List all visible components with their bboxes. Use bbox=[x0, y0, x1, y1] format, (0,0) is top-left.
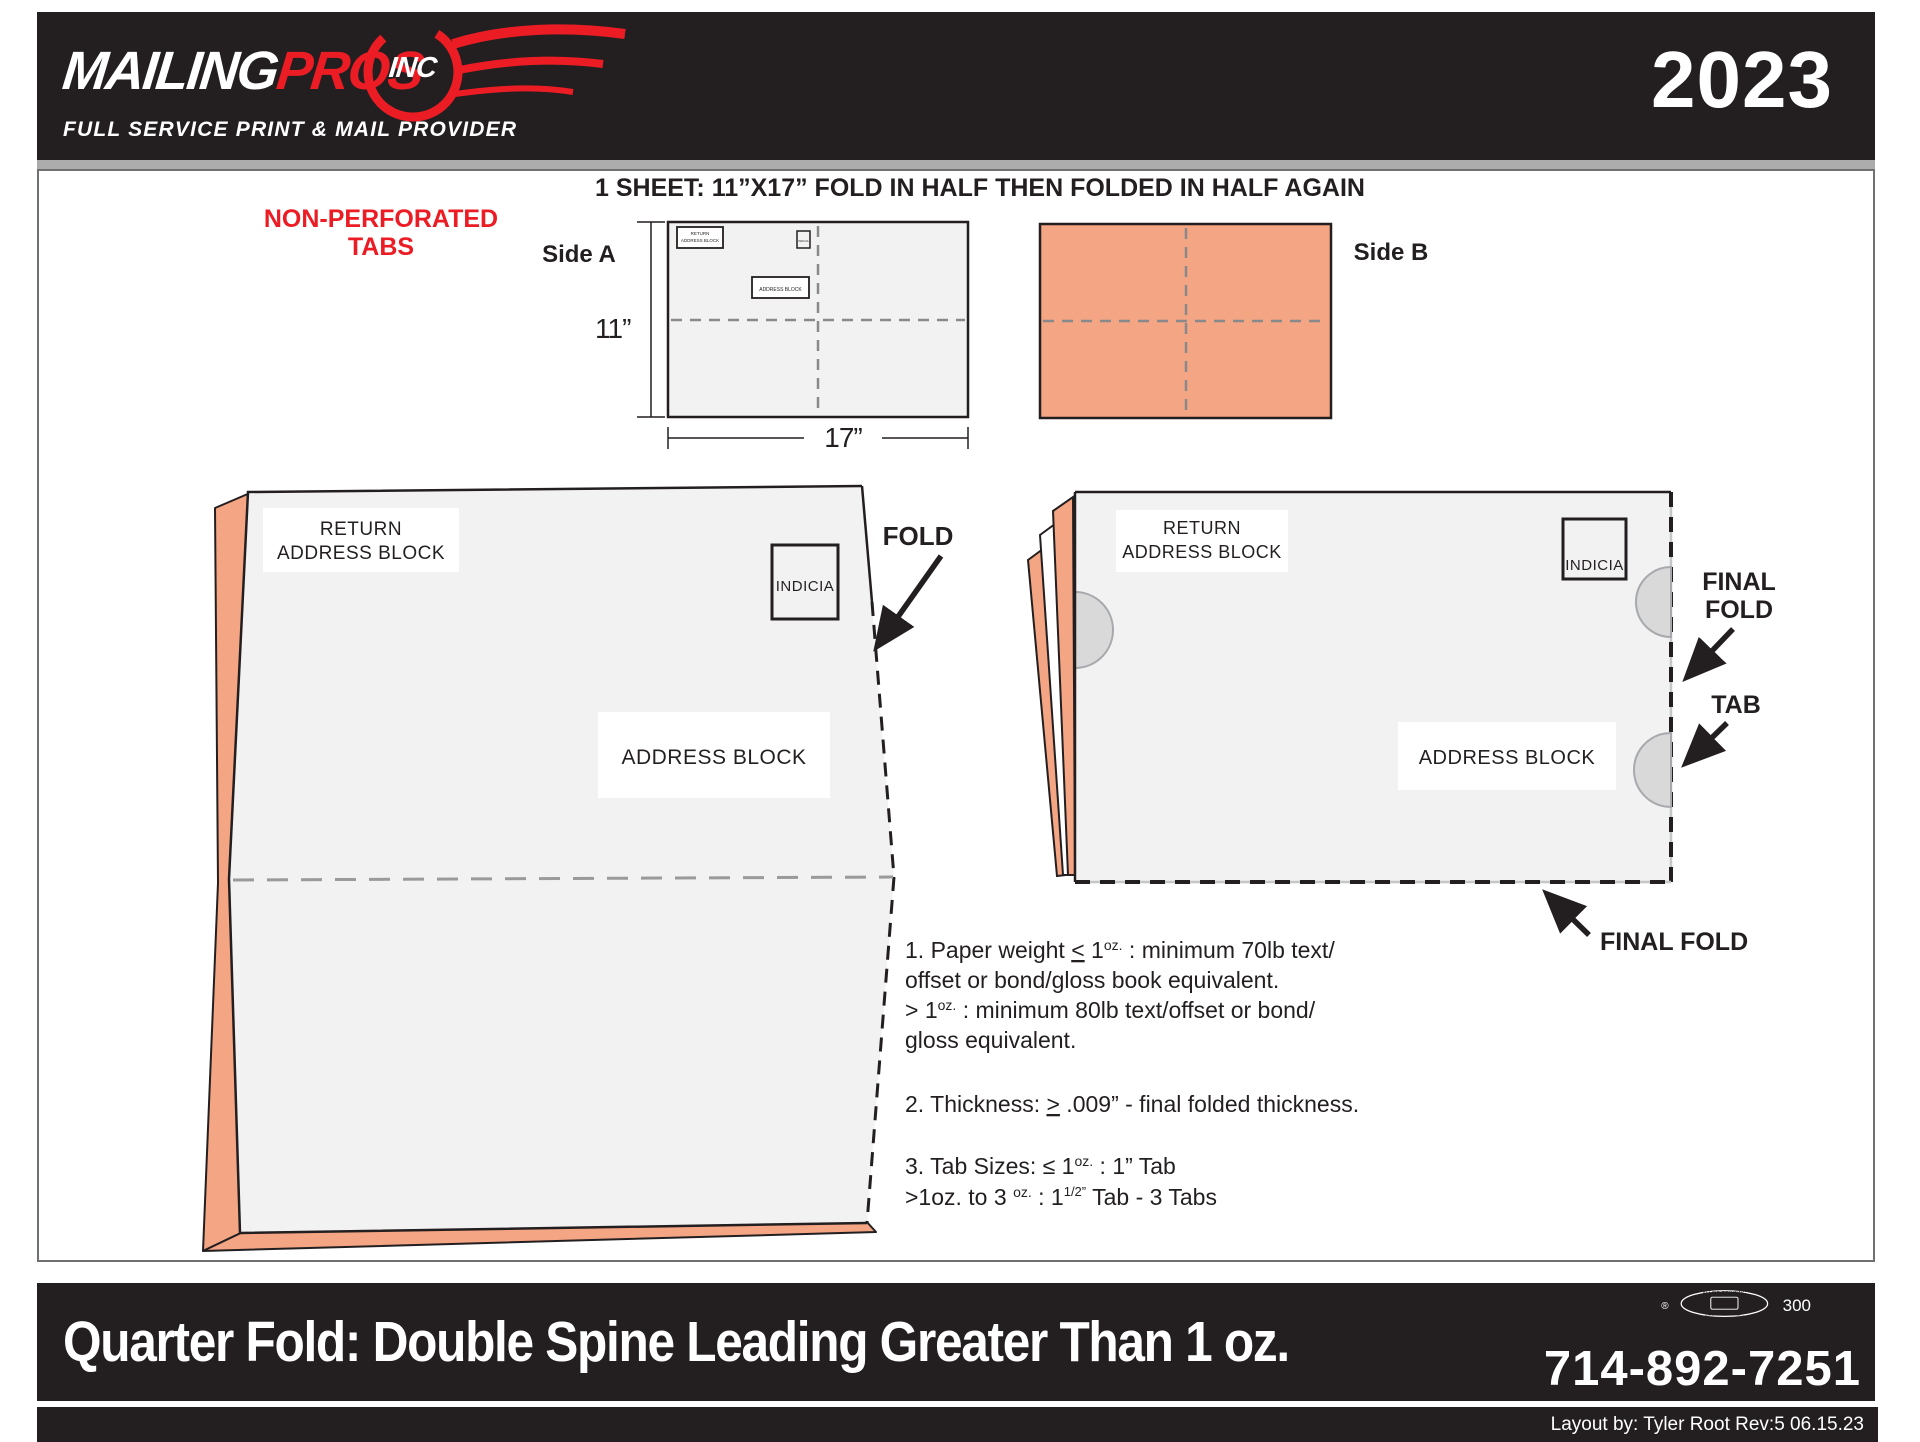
final-fold-bottom-arrow-icon bbox=[1548, 895, 1589, 935]
note-1-line-4: gloss equivalent. bbox=[905, 1027, 1076, 1053]
tab-arrow-icon bbox=[1687, 723, 1727, 762]
fold-arrow-icon bbox=[878, 556, 941, 645]
union-number: 300 bbox=[1783, 1296, 1811, 1316]
bug-mailing-text: MAILING PROS INC. bbox=[1703, 1318, 1745, 1323]
side-a-return-line2: ADDRESS BLOCK bbox=[681, 238, 719, 243]
address-block-label: ADDRESS BLOCK bbox=[621, 746, 806, 769]
note-1-line-1: 1. Paper weight < 1oz. : minimum 70lb te… bbox=[905, 937, 1335, 963]
union-bug-icon: ALLIED PRINTING TRADES UNION LABEL COUNC… bbox=[1674, 1286, 1778, 1326]
fold-diagram-canvas: 1 SHEET: 11”X17” FOLD IN HALF THEN FOLDE… bbox=[39, 171, 1873, 1260]
header-shadow bbox=[37, 160, 1875, 169]
non-perforated-line2: TABS bbox=[348, 233, 414, 261]
final-indicia-label: INDICIA bbox=[1565, 557, 1624, 574]
folded-front-sheet bbox=[229, 486, 894, 1233]
fold-label: FOLD bbox=[883, 521, 954, 551]
footer-bar: Quarter Fold: Double Spine Leading Great… bbox=[37, 1283, 1875, 1401]
bug-allied-text: ALLIED PRINTING bbox=[1702, 1291, 1746, 1297]
registered-mark: ® bbox=[1661, 1301, 1668, 1312]
non-perforated-line1: NON-PERFORATED bbox=[264, 205, 498, 233]
side-a-return-line1: RETURN bbox=[691, 231, 710, 236]
note-3-line-2: >1oz. to 3 oz. : 11/2” Tab - 3 Tabs bbox=[905, 1184, 1217, 1210]
year-label: 2023 bbox=[1651, 34, 1833, 126]
logo-tagline: FULL SERVICE PRINT & MAIL PROVIDER bbox=[63, 118, 517, 142]
phone-number: 714-892-7251 bbox=[1544, 1341, 1861, 1397]
indicia-label: INDICIA bbox=[776, 578, 835, 595]
final-return-address-line1: RETURN bbox=[1163, 518, 1241, 538]
note-1-line-3: > 1oz. : minimum 80lb text/offset or bon… bbox=[905, 997, 1316, 1023]
footer-title: Quarter Fold: Double Spine Leading Great… bbox=[63, 1309, 1289, 1375]
final-address-block-label: ADDRESS BLOCK bbox=[1419, 747, 1596, 769]
note-3-line-1: 3. Tab Sizes: ≤ 1oz. : 1” Tab bbox=[905, 1153, 1176, 1179]
content-frame: 1 SHEET: 11”X17” FOLD IN HALF THEN FOLDE… bbox=[37, 169, 1875, 1262]
layout-credit: Layout by: Tyler Root Rev:5 06.15.23 bbox=[1551, 1414, 1864, 1436]
bug-council-text: COUNCIL bbox=[1740, 1302, 1763, 1308]
final-fold-label-line1: FINAL bbox=[1702, 568, 1776, 596]
note-1-line-2: offset or bond/gloss book equivalent. bbox=[905, 967, 1279, 993]
union-bug-cluster: ® ALLIED PRINTING TRADES UNION LABEL COU… bbox=[1661, 1286, 1811, 1326]
dim-height-label: 11” bbox=[595, 313, 631, 344]
side-a-indicia-label: INDICIA bbox=[798, 239, 808, 243]
final-fold-arrow-icon bbox=[1688, 629, 1733, 676]
final-fold-label-line2: FOLD bbox=[1705, 596, 1773, 624]
side-a-label: Side A bbox=[542, 241, 616, 268]
bug-label-text: LABEL bbox=[1717, 1304, 1731, 1309]
spec-notes: 1. Paper weight < 1oz. : minimum 70lb te… bbox=[905, 937, 1359, 1210]
return-address-line2: ADDRESS BLOCK bbox=[277, 543, 445, 564]
logo: MAILINGPROS bbox=[60, 40, 426, 102]
footer-credit-bar: Layout by: Tyler Root Rev:5 06.15.23 bbox=[37, 1407, 1878, 1442]
side-a-address-label: ADDRESS BLOCK bbox=[759, 287, 802, 293]
header-bar: MAILINGPROS INC FULL SERVICE PRINT & MAI… bbox=[37, 12, 1875, 160]
return-address-line1: RETURN bbox=[320, 519, 402, 540]
bug-union-text: UNION bbox=[1717, 1299, 1731, 1304]
logo-swoosh-mid bbox=[459, 61, 603, 70]
logo-swoosh-bottom bbox=[455, 88, 573, 94]
final-return-address-line2: ADDRESS BLOCK bbox=[1122, 542, 1282, 562]
logo-inc-text: INC bbox=[387, 52, 437, 85]
side-b-label: Side B bbox=[1354, 239, 1429, 266]
final-fold-bottom-label: FINAL FOLD bbox=[1600, 928, 1748, 956]
logo-mailing-text: MAILING bbox=[60, 41, 280, 101]
tab-label: TAB bbox=[1711, 691, 1761, 719]
bug-southern-text: SOUTHERN CALIF. bbox=[1705, 1312, 1744, 1317]
dim-width-label: 17” bbox=[824, 422, 862, 453]
note-2: 2. Thickness: > .009” - final folded thi… bbox=[905, 1091, 1359, 1117]
bug-trades-text: TRADES bbox=[1688, 1302, 1710, 1308]
sheet-title: 1 SHEET: 11”X17” FOLD IN HALF THEN FOLDE… bbox=[595, 174, 1365, 202]
logo-swoosh-top bbox=[453, 29, 625, 44]
